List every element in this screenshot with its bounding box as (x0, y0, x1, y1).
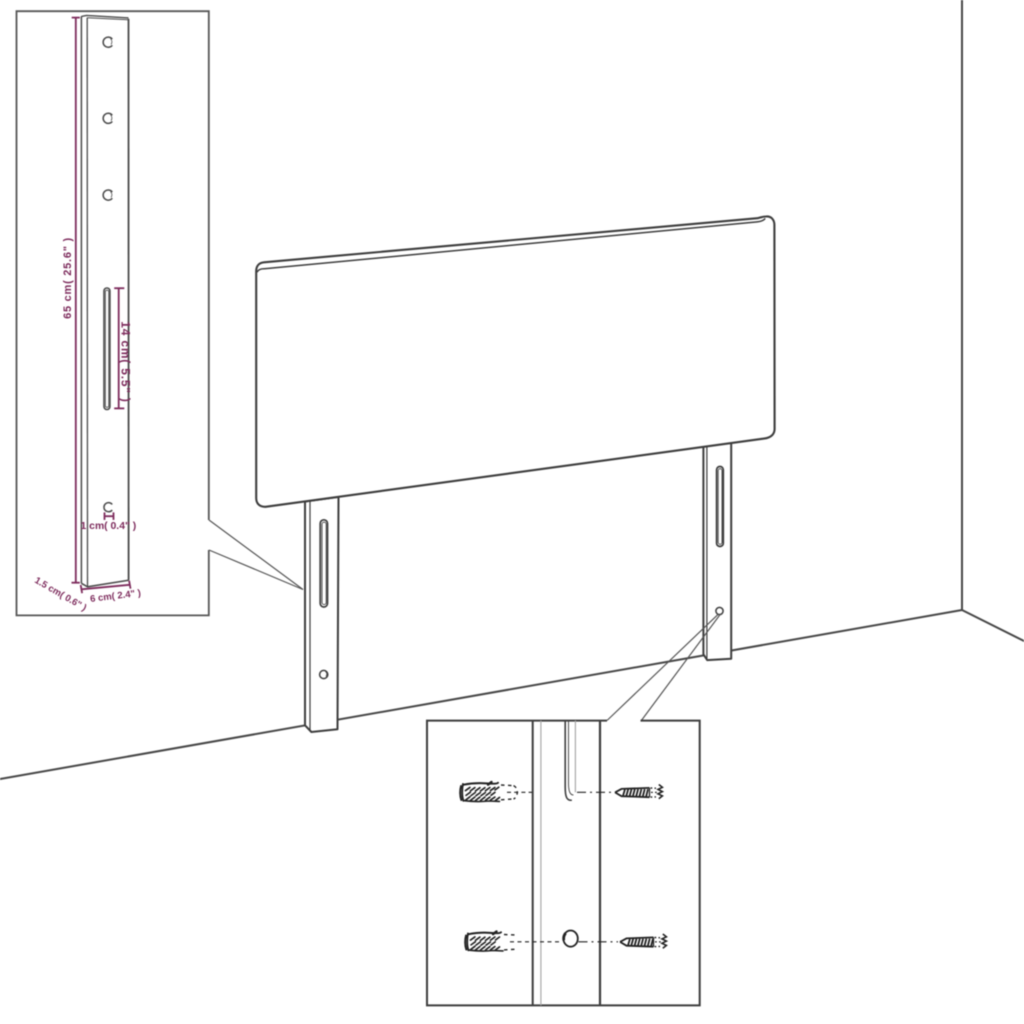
svg-text:1 cm( 0.4" ): 1 cm( 0.4" ) (81, 521, 137, 532)
svg-text:14 cm( 5.5" ): 14 cm( 5.5" ) (119, 321, 133, 402)
svg-text:65 cm( 25.6" ): 65 cm( 25.6" ) (62, 237, 74, 319)
